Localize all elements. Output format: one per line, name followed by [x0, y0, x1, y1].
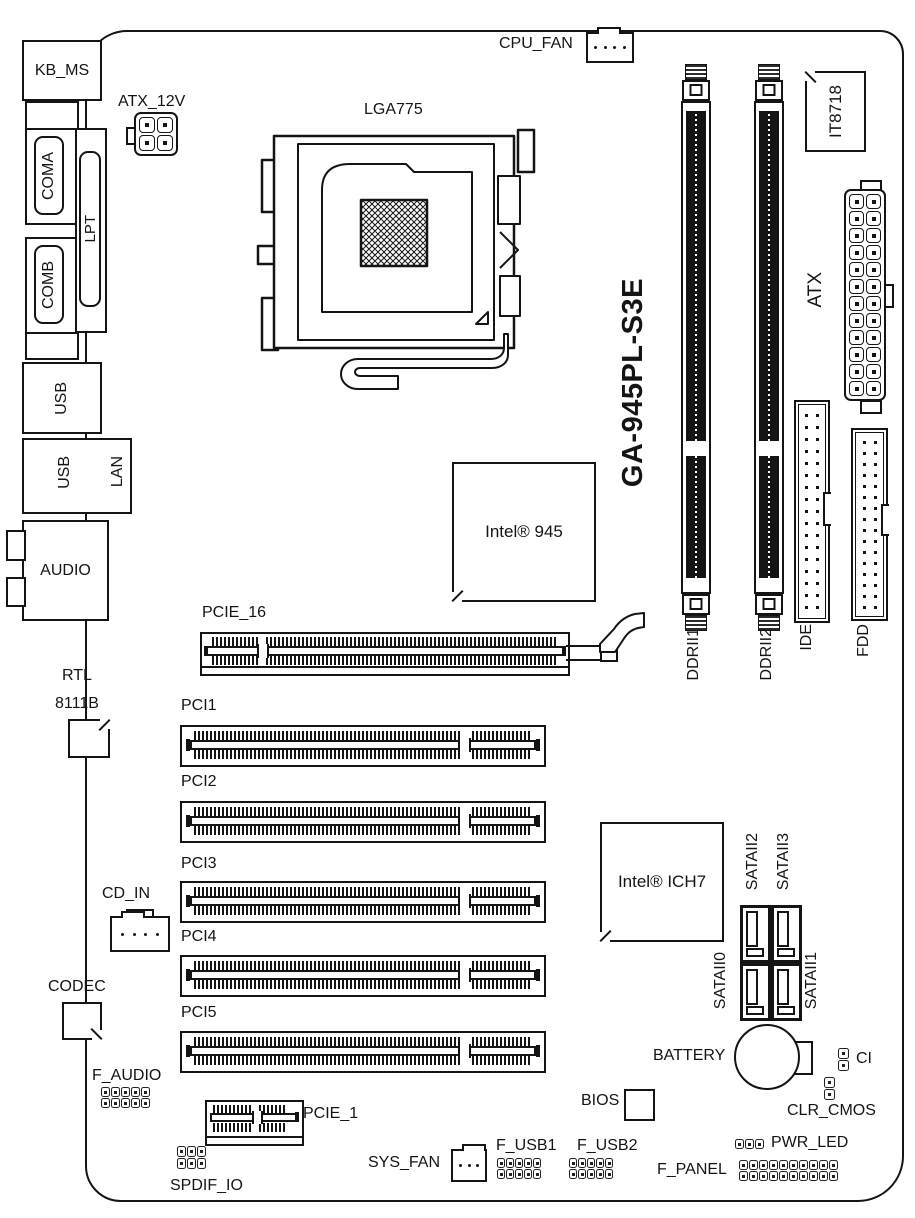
it8718-chip: IT8718: [805, 71, 866, 152]
pci3-slot: [180, 881, 546, 923]
audio-port: AUDIO: [22, 520, 109, 621]
atx-12v-connector: [134, 112, 178, 156]
cpu-fan-connector: [586, 32, 634, 63]
spdif-io-label: SPDIF_IO: [170, 1178, 243, 1195]
it8718-label: IT8718: [826, 85, 846, 138]
pcie1-slot: [205, 1100, 304, 1146]
fdd-connector: [851, 428, 888, 621]
coma-dsub: COMA: [34, 136, 64, 215]
pcie1-label: PCIE_1: [303, 1106, 358, 1123]
fdd-label: FDD: [856, 624, 873, 657]
codec-chip: [62, 1002, 102, 1040]
rtl-label-line2: 8111B: [55, 696, 99, 713]
usb-mid-label: USB: [57, 456, 74, 489]
usb-port-top: USB: [22, 362, 102, 434]
f-panel-label: F_PANEL: [657, 1162, 727, 1179]
sata0-connector: [740, 963, 771, 1021]
pwr-led-header: [735, 1139, 764, 1149]
cd-in-connector: [110, 916, 170, 952]
clr-cmos-label: CLR_CMOS: [787, 1103, 876, 1120]
cd-in-label: CD_IN: [102, 886, 150, 903]
intel-ich7-label: Intel® ICH7: [618, 872, 706, 892]
ci-label: CI: [856, 1051, 872, 1068]
f-usb2-header: [569, 1158, 613, 1179]
coma-label: COMA: [40, 152, 58, 200]
comb-port: COMB: [25, 237, 79, 334]
sata1-label: SATAII1: [804, 952, 821, 1009]
motherboard-layout-diagram: KB_MS COMA COMB LPT USB USB LAN AUDIO AT…: [0, 0, 915, 1218]
pci1-slot: [180, 725, 546, 767]
pci3-label: PCI3: [181, 856, 217, 873]
cpu-fan-label: CPU_FAN: [499, 36, 573, 53]
ddr-slot-1: [681, 64, 711, 631]
f-usb1-header: [497, 1158, 541, 1179]
board-model-title: GA-945PL-S3E: [618, 278, 648, 487]
usb-top-label: USB: [53, 382, 71, 415]
audio-label: AUDIO: [40, 562, 91, 580]
codec-label: CODEC: [48, 979, 106, 996]
pcie16-latch-bars: [566, 645, 600, 661]
lpt-dsub: LPT: [79, 151, 101, 307]
pci2-slot: [180, 801, 546, 843]
ddr-slot-2: [754, 64, 784, 631]
atx-connector: [844, 189, 886, 401]
lga775-socket: [258, 120, 548, 392]
pcie16-slot: [200, 632, 570, 676]
atx-tab-bottom: [860, 400, 882, 414]
pci4-label: PCI4: [181, 929, 217, 946]
pci2-label: PCI2: [181, 774, 217, 791]
atx-label: ATX: [806, 272, 826, 308]
lpt-port: LPT: [75, 128, 107, 333]
f-usb1-label: F_USB1: [496, 1138, 556, 1155]
ide-notch: [823, 492, 831, 526]
sata2-label: SATAII2: [745, 833, 762, 890]
audio-jack-2: [6, 577, 26, 607]
kb-ms-label: KB_MS: [35, 62, 89, 80]
coma-port: COMA: [25, 128, 79, 225]
pci4-slot: [180, 955, 546, 997]
sys-fan-connector: [451, 1149, 487, 1182]
battery: [734, 1024, 800, 1090]
battery-label: BATTERY: [653, 1048, 725, 1065]
audio-jack-1: [6, 530, 26, 561]
pwr-led-label: PWR_LED: [771, 1135, 848, 1152]
pci5-slot: [180, 1031, 546, 1073]
intel-ich7-chip: Intel® ICH7: [600, 822, 724, 942]
sata2-connector: [740, 905, 771, 963]
fdd-notch: [881, 504, 889, 536]
ddr2-label: DDRII2: [759, 628, 776, 680]
f-panel-header: [739, 1160, 838, 1181]
ide-connector: [794, 400, 830, 623]
atx-12v-label: ATX_12V: [118, 94, 185, 111]
sata0-label: SATAII0: [713, 952, 730, 1009]
kb-ms-port: KB_MS: [22, 40, 102, 101]
lan-label: LAN: [110, 456, 127, 487]
sys-fan-label: SYS_FAN: [368, 1155, 440, 1172]
clr-cmos-header: [824, 1077, 835, 1100]
comb-label: COMB: [40, 261, 58, 309]
f-audio-label: F_AUDIO: [92, 1068, 161, 1085]
io-spacer-top: [25, 101, 79, 131]
ci-header: [838, 1048, 849, 1071]
lpt-label: LPT: [82, 215, 99, 243]
pci5-label: PCI5: [181, 1005, 217, 1022]
rtl-label-line1: RTL: [62, 668, 92, 685]
comb-dsub: COMB: [34, 245, 64, 324]
io-spacer-mid: [25, 332, 79, 360]
spdif-io-header: [177, 1146, 206, 1169]
ddr1-label: DDRII1: [686, 628, 703, 680]
intel-945-label: Intel® 945: [485, 522, 563, 542]
ide-label: IDE: [799, 624, 816, 651]
f-audio-header: [101, 1087, 150, 1108]
lga775-label: LGA775: [364, 102, 423, 119]
pci1-label: PCI1: [181, 698, 217, 715]
sata3-label: SATAII3: [776, 833, 793, 890]
bios-label: BIOS: [581, 1093, 619, 1110]
usb-lan-port: USB LAN: [22, 438, 132, 514]
pcie16-label: PCIE_16: [202, 605, 266, 622]
f-usb2-label: F_USB2: [577, 1138, 637, 1155]
sata3-connector: [771, 905, 802, 963]
pcie16-retention-hook: [598, 608, 648, 660]
intel-945-chip: Intel® 945: [452, 462, 596, 602]
sata1-connector: [771, 963, 802, 1021]
bios-chip: [624, 1089, 655, 1121]
rtl-8111b-chip: [68, 719, 110, 758]
